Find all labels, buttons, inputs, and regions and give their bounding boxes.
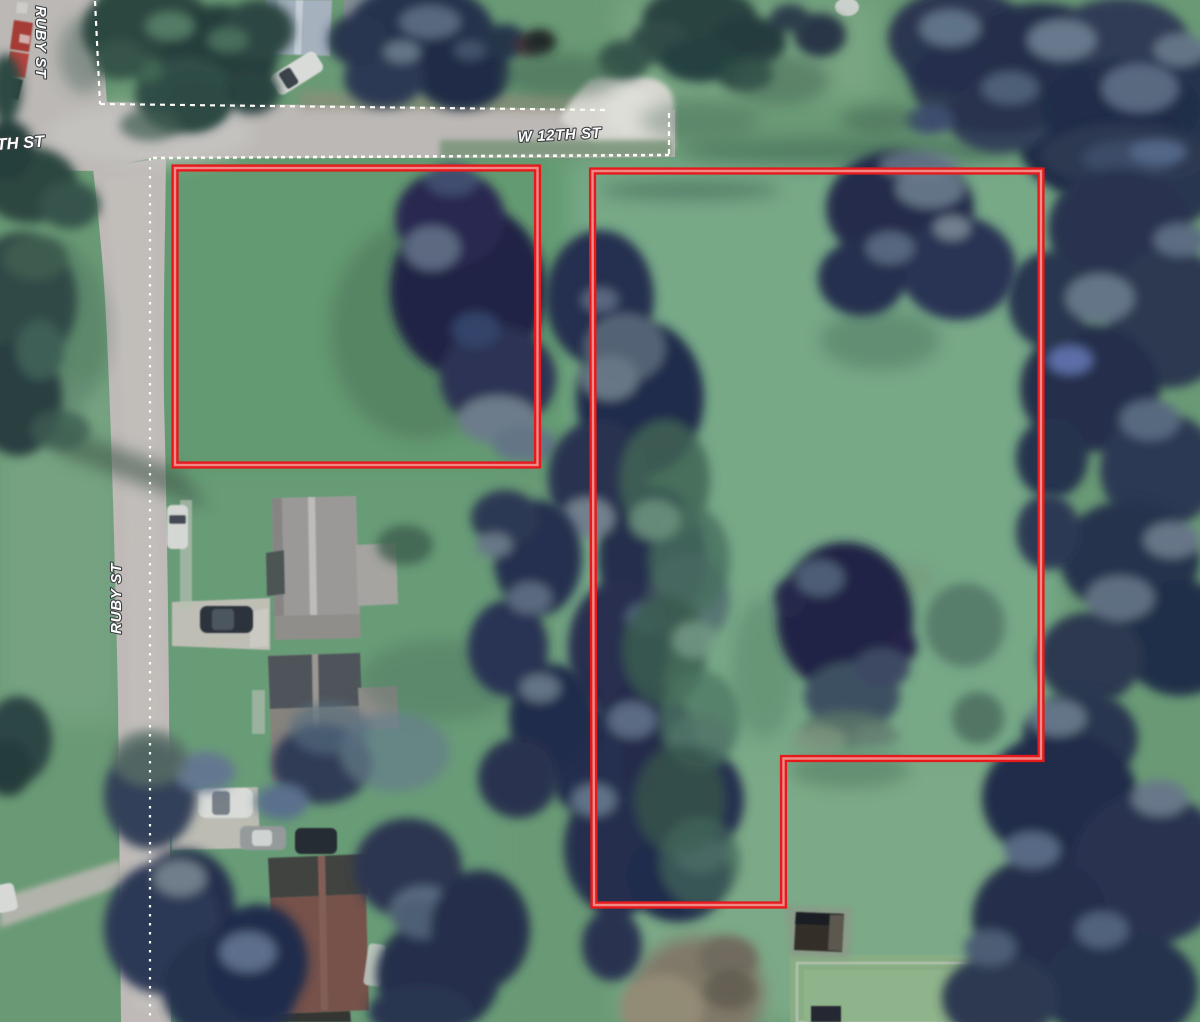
svg-text:TH ST: TH ST — [0, 133, 47, 154]
svg-text:RUBY ST: RUBY ST — [108, 562, 125, 634]
svg-text:RUBY ST: RUBY ST — [32, 6, 49, 79]
